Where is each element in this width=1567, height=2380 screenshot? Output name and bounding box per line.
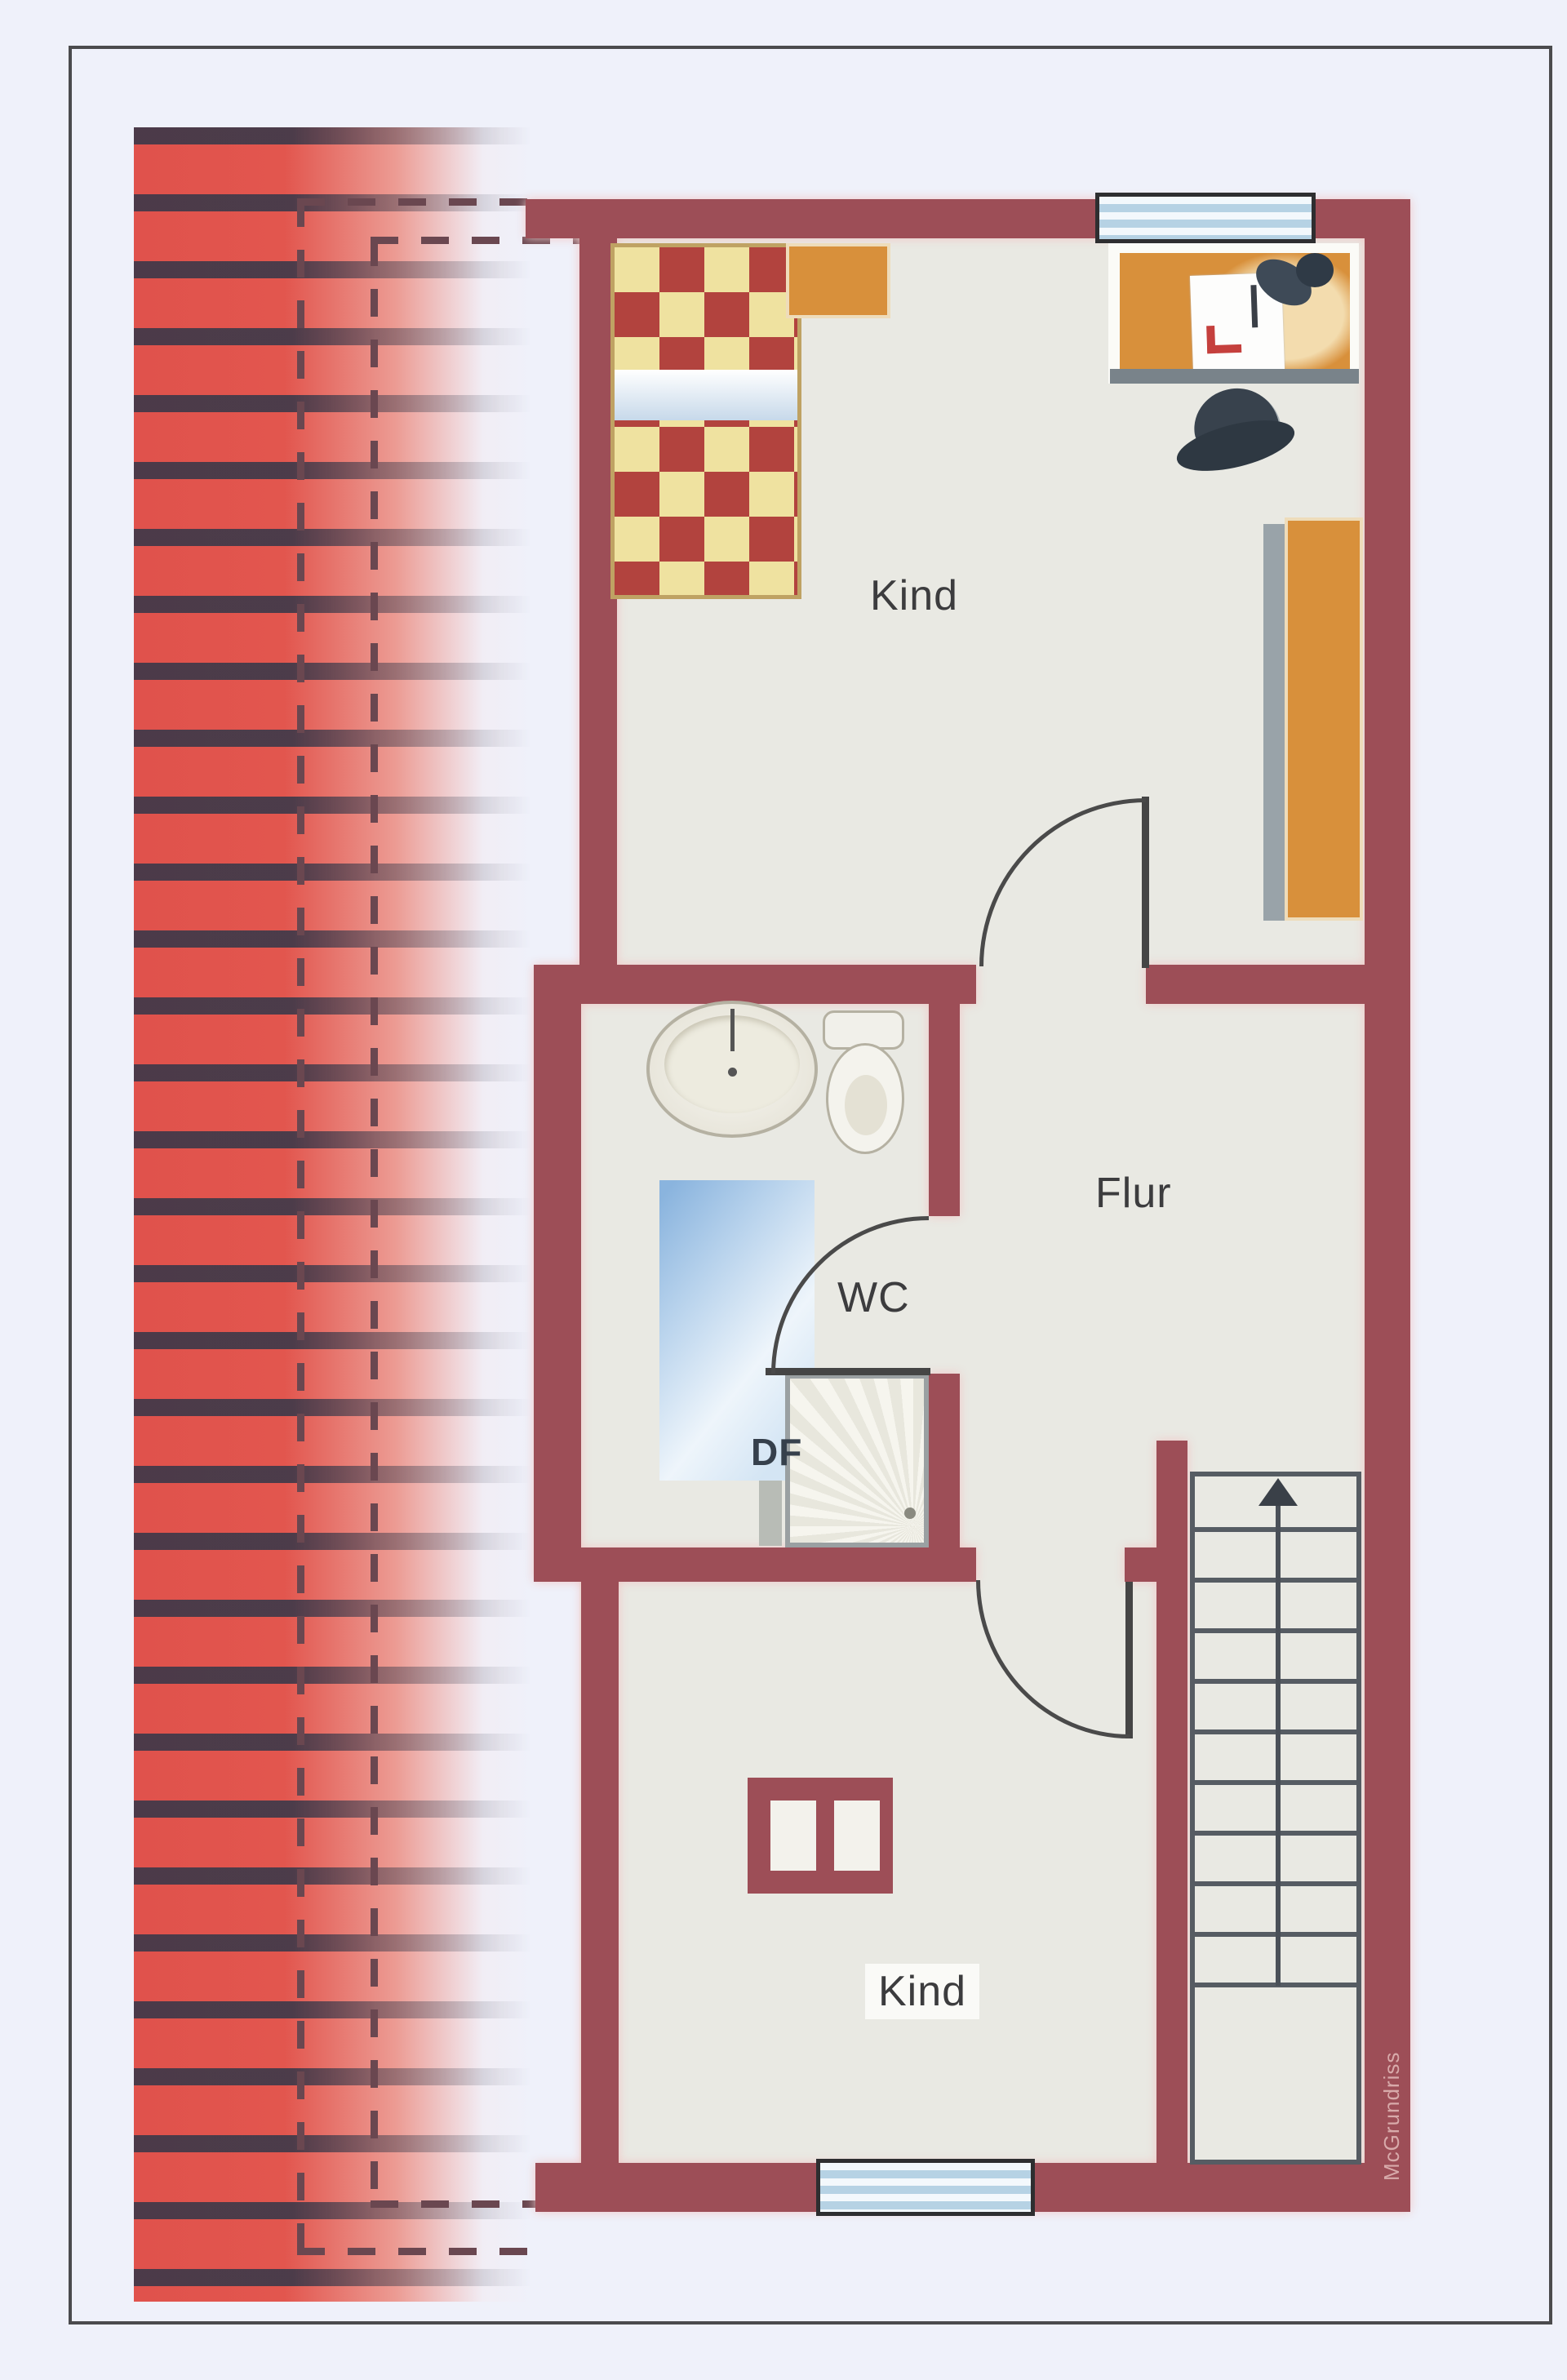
room-label-kind-top: Kind	[870, 571, 958, 620]
bed-icon	[610, 243, 801, 599]
chimney-flue	[834, 1801, 880, 1871]
desk-front-edge	[1110, 369, 1359, 384]
sink-tap	[730, 1009, 735, 1051]
wall-left-lower	[581, 1577, 619, 2163]
room-label-kind-bottom: Kind	[865, 1964, 979, 2019]
chimney-icon	[748, 1778, 893, 1894]
room-label-df: DF	[751, 1430, 802, 1474]
paper-red-mark	[1206, 325, 1241, 353]
paper-dark-mark	[1250, 285, 1258, 327]
wardrobe-shadow	[1263, 524, 1285, 921]
window-icon-bottom	[816, 2159, 1035, 2216]
floor-plan-page: Kind Flur WC DF Kind McGrundriss	[0, 0, 1567, 2380]
roof-window-stem	[759, 1481, 782, 1546]
roof-slope-area	[134, 127, 530, 2302]
sink-drain	[728, 1068, 737, 1077]
wall-wc-top	[534, 965, 976, 1004]
wall-kind-door-stub	[1146, 965, 1371, 1004]
roof-stripe-pattern	[134, 127, 530, 2302]
kniestock-dashed-bottom-outer	[297, 2248, 529, 2255]
wall-lower-door-stub	[1125, 1547, 1159, 1582]
wall-wc-right-upper	[929, 1004, 960, 1216]
toilet-bowl-inner	[845, 1075, 887, 1135]
kniestock-dashed-top-outer	[297, 198, 529, 206]
toilet-icon	[826, 1043, 904, 1154]
room-label-wc: WC	[837, 1273, 910, 1322]
wardrobe-icon	[1285, 517, 1363, 921]
window-icon-top	[1095, 193, 1316, 243]
stair-walk-line	[1276, 1499, 1281, 1986]
sink-icon	[646, 1001, 818, 1138]
watermark-text: McGrundriss	[1379, 2009, 1405, 2181]
wall-wc-left	[534, 965, 581, 1582]
room-label-flur: Flur	[1095, 1169, 1172, 1218]
wall-stairs-left	[1156, 1441, 1187, 2163]
wall-right	[1365, 199, 1410, 2212]
kniestock-dashed-line-outer	[297, 199, 304, 2255]
shower-icon	[785, 1374, 929, 1547]
kniestock-dashed-bottom-inner	[371, 2200, 535, 2208]
kniestock-dashed-line-inner	[371, 238, 378, 2208]
stair-up-arrow-icon	[1258, 1478, 1298, 1506]
desk-lamp-head	[1296, 253, 1334, 287]
stairs	[1190, 1472, 1361, 2165]
nightstand-icon	[786, 243, 890, 318]
shower-drain	[904, 1507, 916, 1519]
bed-sheet	[615, 370, 797, 420]
chimney-flue	[770, 1801, 816, 1871]
